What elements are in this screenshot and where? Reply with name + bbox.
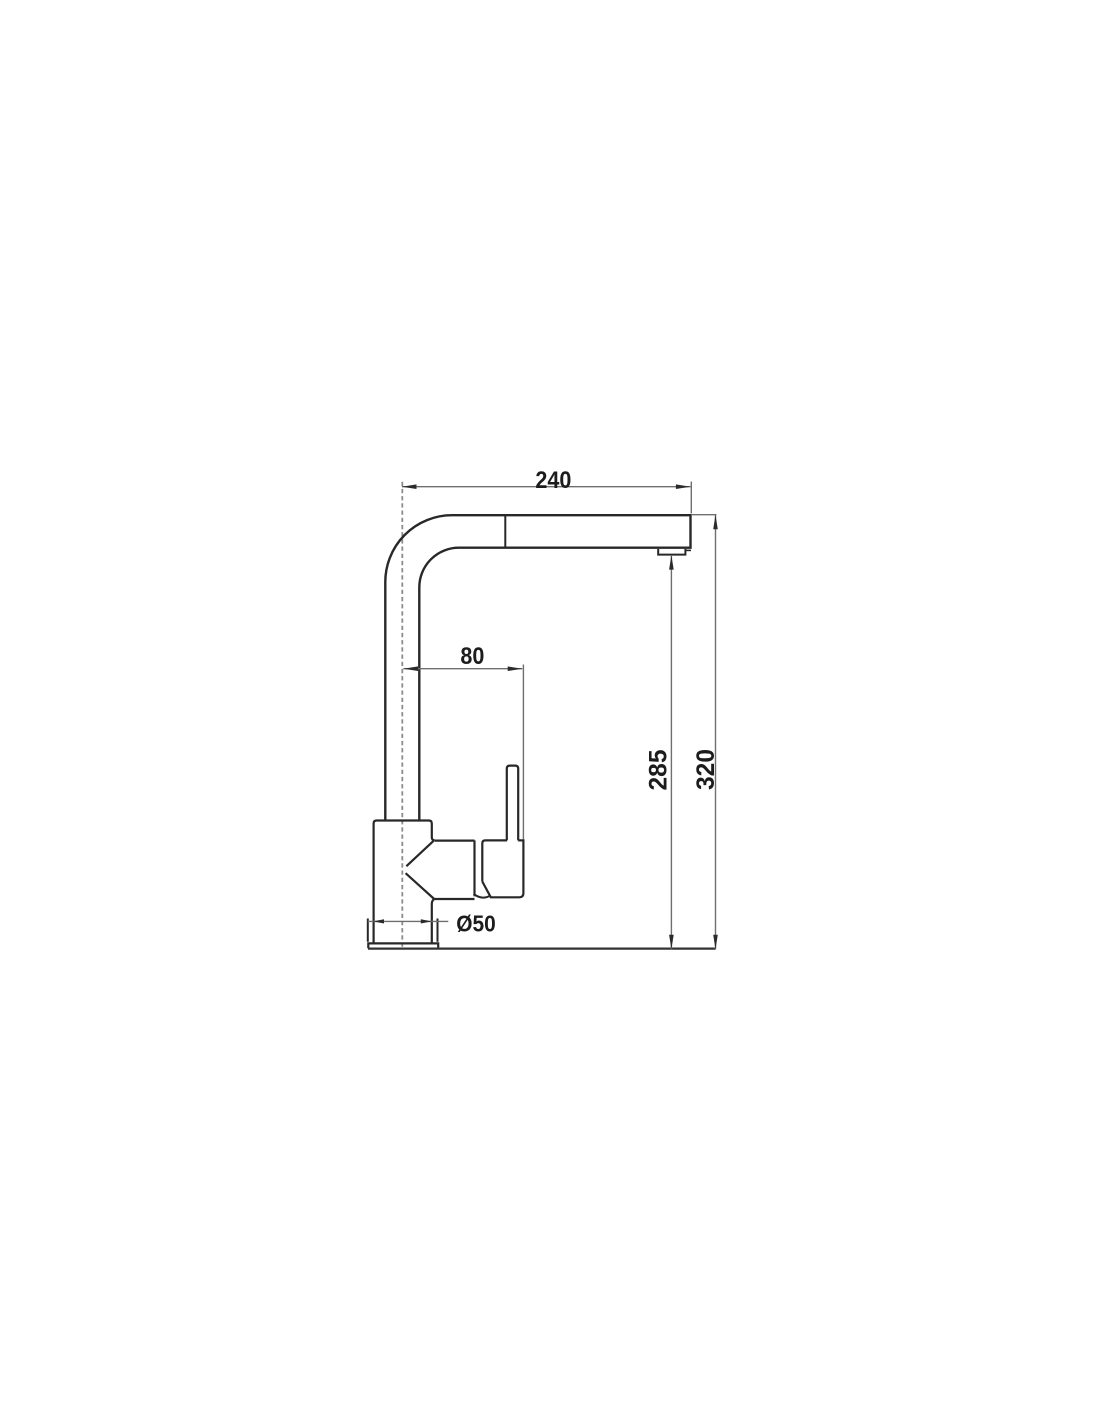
svg-text:320: 320	[692, 749, 720, 790]
svg-text:285: 285	[645, 749, 673, 790]
svg-text:Ø50: Ø50	[456, 911, 496, 937]
svg-text:240: 240	[535, 467, 571, 494]
svg-text:80: 80	[460, 643, 484, 670]
